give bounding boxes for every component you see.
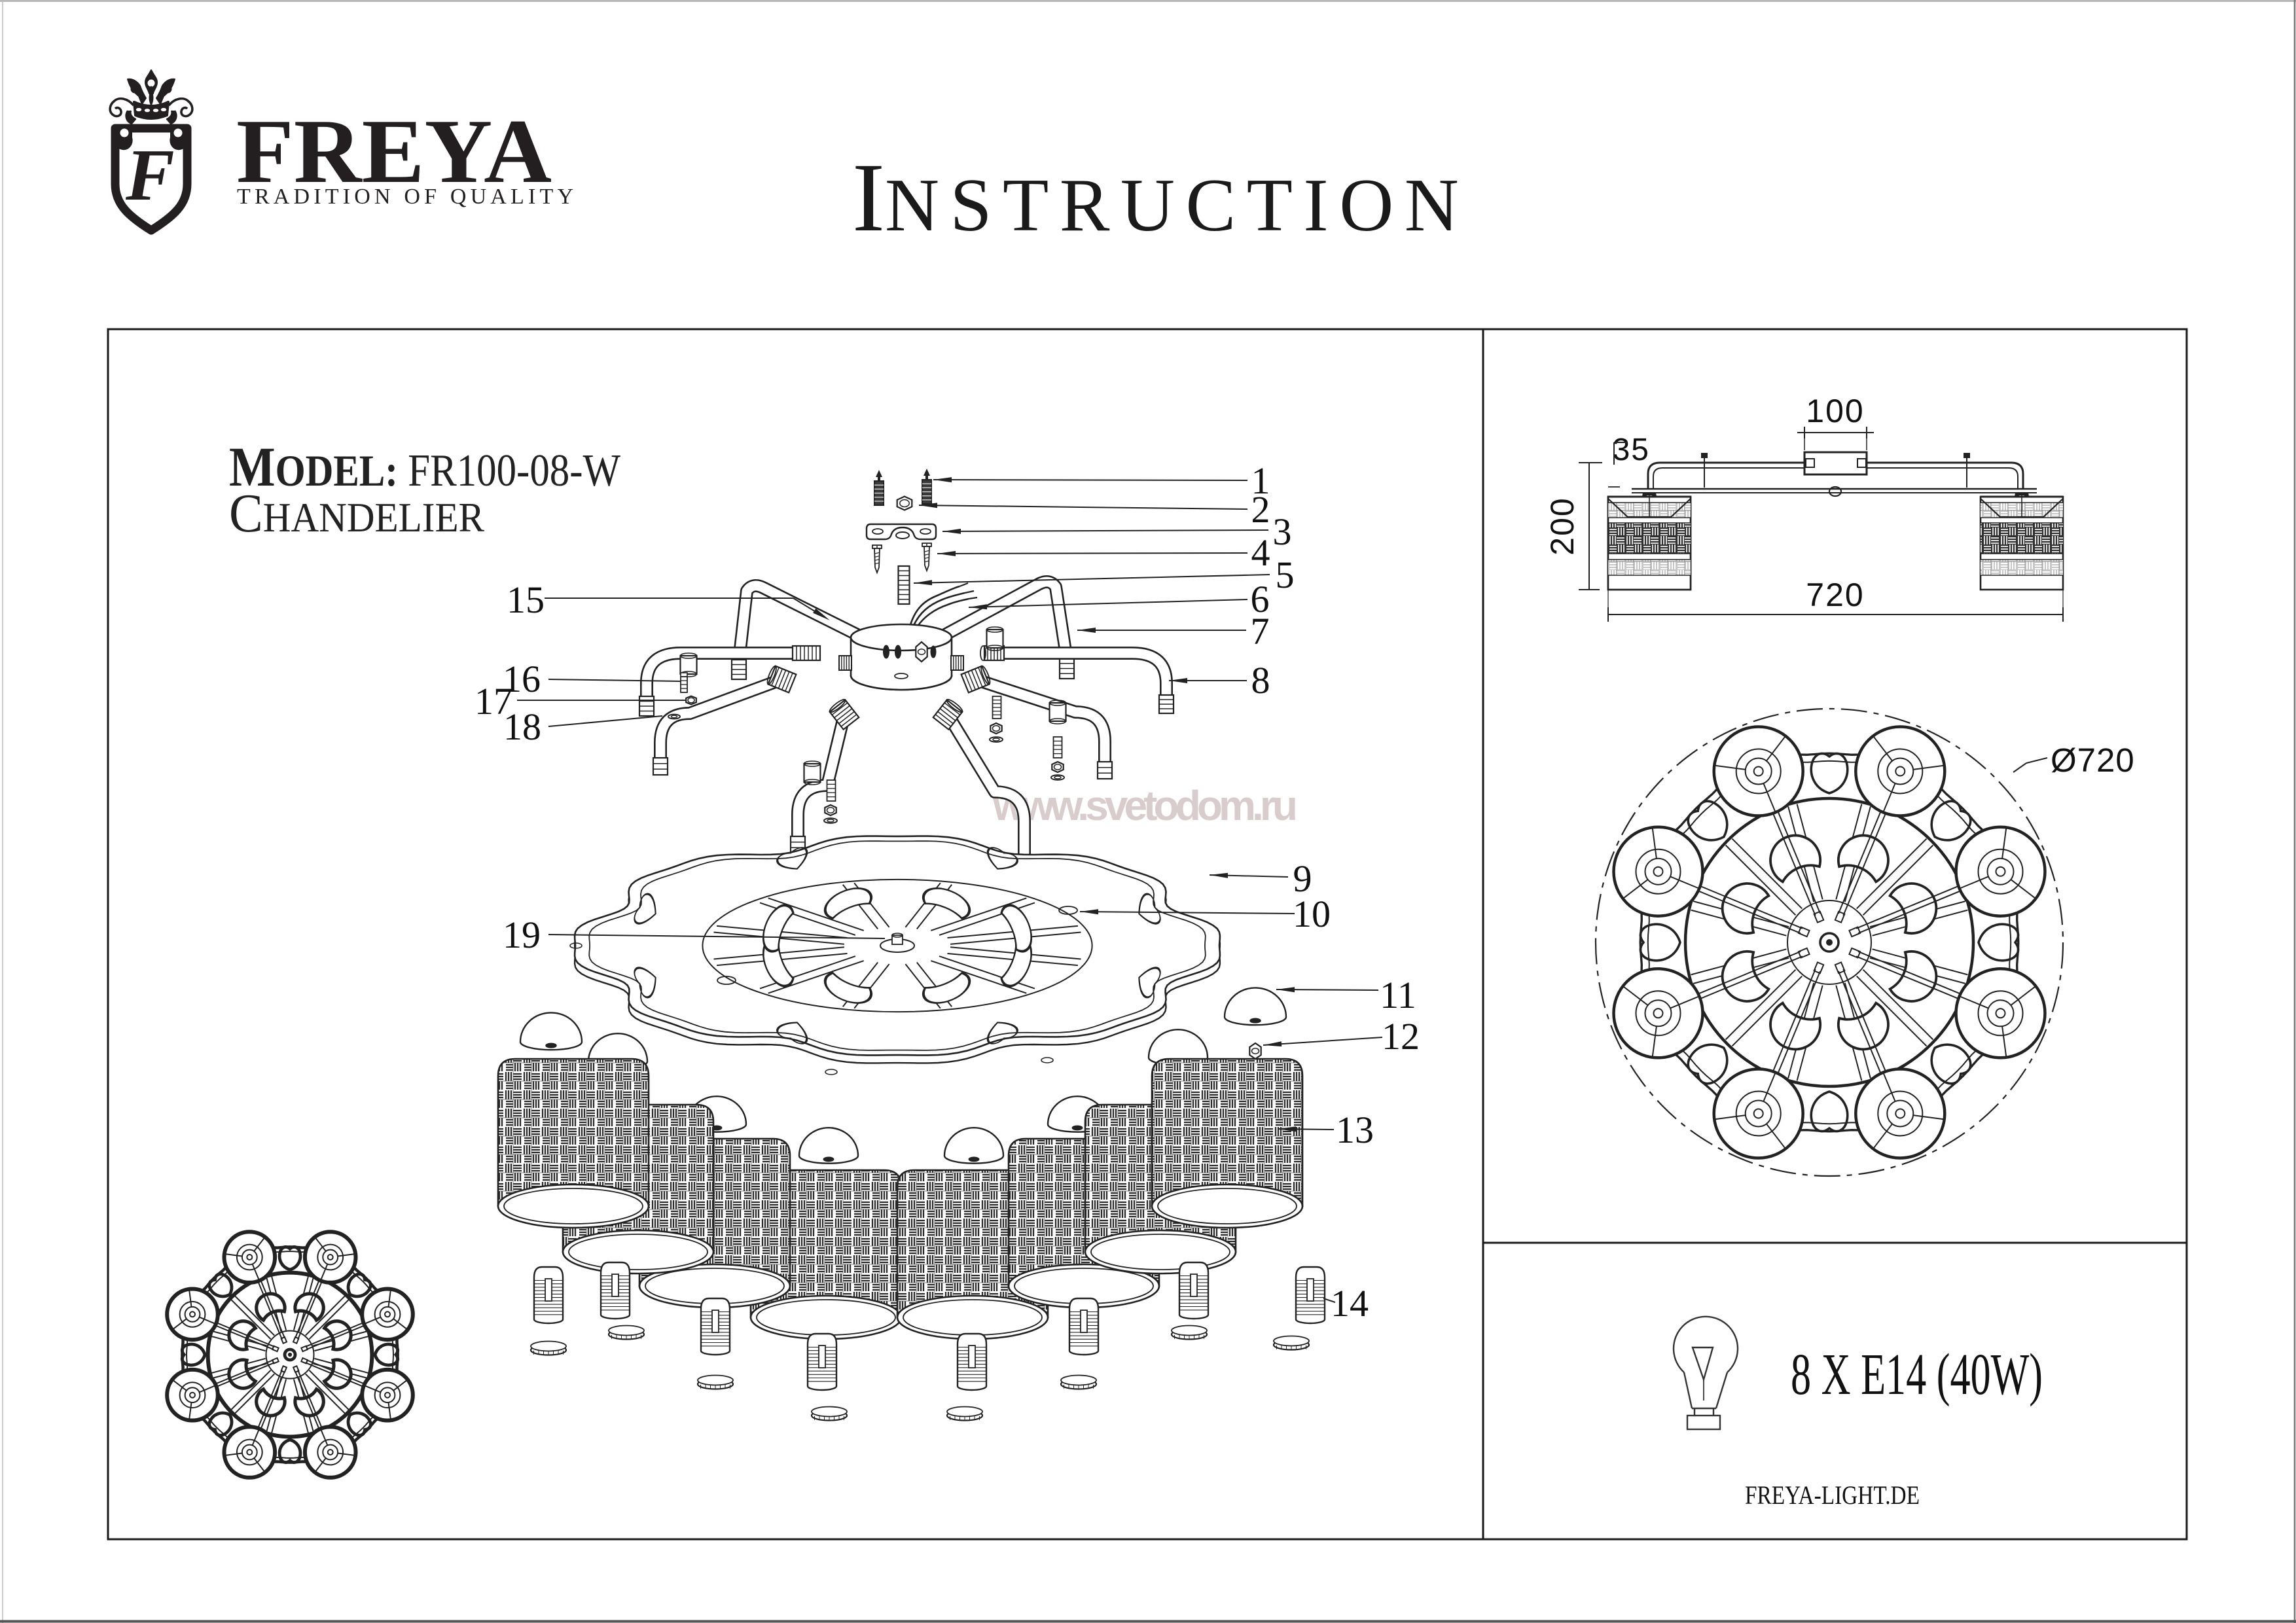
svg-text:3: 3: [1273, 510, 1292, 553]
svg-text:5: 5: [1276, 554, 1295, 596]
svg-text:19: 19: [503, 914, 541, 956]
svg-text:15: 15: [507, 579, 545, 621]
svg-text:13: 13: [1336, 1109, 1374, 1151]
svg-text:12: 12: [1382, 1015, 1420, 1058]
svg-text:FREYA-LIGHT.DE: FREYA-LIGHT.DE: [1745, 1480, 1920, 1510]
svg-text:100: 100: [1806, 393, 1864, 429]
svg-text:18: 18: [503, 705, 541, 748]
svg-text:2: 2: [1251, 488, 1270, 531]
svg-text:720: 720: [1806, 577, 1864, 613]
svg-text:8: 8: [1251, 659, 1270, 702]
svg-text:8 X E14 (40W): 8 X E14 (40W): [1791, 1342, 2043, 1407]
svg-text:200: 200: [1544, 497, 1581, 555]
svg-text:14: 14: [1331, 1282, 1369, 1325]
svg-text:4: 4: [1251, 531, 1270, 574]
svg-text:35: 35: [1613, 433, 1650, 467]
svg-text:7: 7: [1251, 610, 1270, 652]
svg-text:Ø720: Ø720: [2051, 741, 2135, 779]
svg-text:11: 11: [1380, 974, 1416, 1016]
svg-text:TRADITION OF QUALITY: TRADITION OF QUALITY: [237, 185, 573, 209]
svg-text:www.svetodom.ru: www.svetodom.ru: [992, 782, 1298, 829]
svg-text:F: F: [125, 135, 175, 216]
svg-text:10: 10: [1293, 893, 1331, 935]
